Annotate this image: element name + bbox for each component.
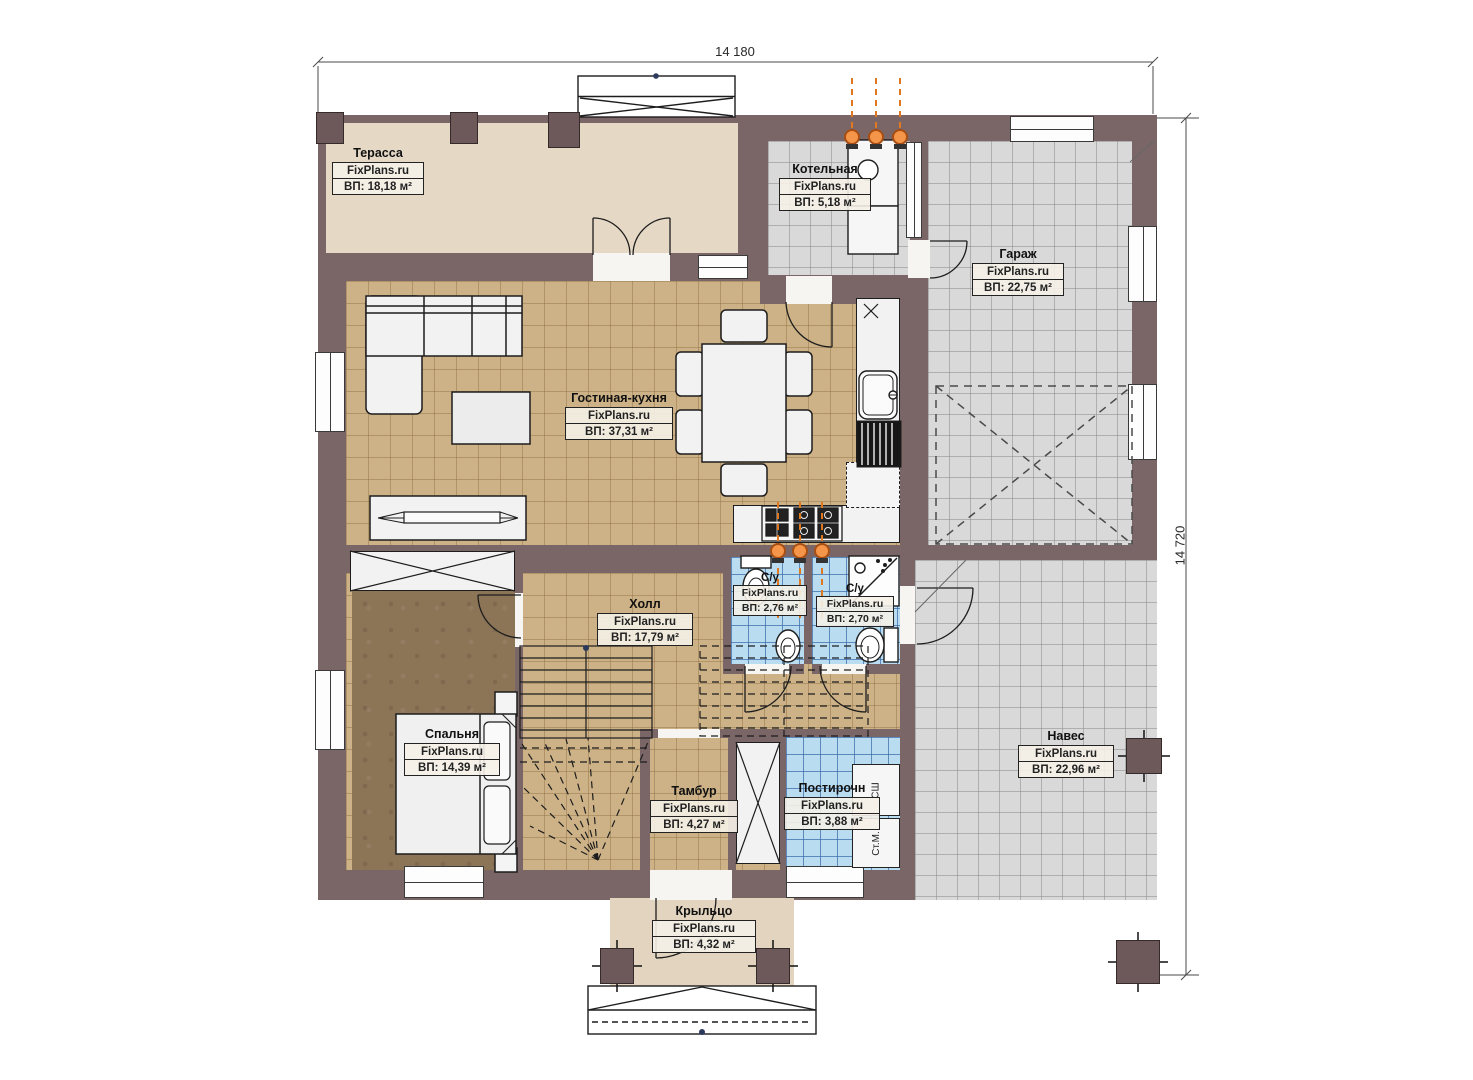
room-area: ВП: 2,70 м² — [817, 612, 893, 626]
brand-link[interactable]: FixPlans.ru — [598, 614, 692, 630]
room-name: С/у — [761, 572, 779, 584]
washing-machine-label: Ст.М. — [871, 831, 882, 856]
kitchen-corner-cabinet — [846, 462, 900, 508]
garage-window-right-2 — [1128, 384, 1157, 460]
terrace-pillar-1 — [316, 112, 344, 144]
porch-pillar-left — [600, 948, 634, 984]
room-area: ВП: 14,39 м² — [405, 760, 499, 775]
brand-link[interactable]: FixPlans.ru — [1019, 746, 1113, 762]
room-area: ВП: 22,96 м² — [1019, 762, 1113, 777]
laundry-top-wall — [786, 729, 900, 737]
room-name: С/у — [846, 583, 864, 595]
boiler-flue-duct — [906, 142, 922, 238]
living-window-left — [315, 352, 345, 432]
room-area: ВП: 18,18 м² — [333, 179, 423, 194]
laundry-window-bottom — [786, 866, 864, 898]
bathroom-2-door-opening — [822, 664, 866, 674]
brand-link[interactable]: FixPlans.ru — [780, 179, 870, 195]
wardrobe-side-wall — [515, 549, 523, 591]
kitchen-boiler-door-opening — [786, 276, 832, 304]
porch-pillar-right — [756, 948, 790, 984]
garage-gate-opening — [1010, 116, 1094, 142]
room-name: Постирочн — [799, 781, 866, 795]
closet-top-wall — [736, 729, 780, 742]
terrace-pillar-2 — [450, 112, 478, 144]
brand-link[interactable]: FixPlans.ru — [405, 744, 499, 760]
room-name: Навес — [1047, 729, 1084, 743]
room-label-laundry: Постирочн FixPlans.ruВП: 3,88 м² — [784, 781, 880, 830]
room-label-bathroom-1: С/у FixPlans.ruВП: 2,76 м² — [733, 572, 807, 616]
room-name: Тамбур — [671, 784, 716, 798]
garage-window-right-1 — [1128, 226, 1157, 302]
bedroom-door-opening — [515, 593, 523, 647]
brand-link[interactable]: FixPlans.ru — [653, 921, 755, 937]
room-name: Гостиная-кухня — [571, 391, 667, 405]
room-label-garage: Гараж FixPlans.ruВП: 22,75 м² — [972, 247, 1064, 296]
brand-link[interactable]: FixPlans.ru — [333, 163, 423, 179]
room-area: ВП: 4,32 м² — [653, 937, 755, 952]
terrace-pillar-3 — [548, 112, 580, 148]
dimension-top-label: 14 180 — [695, 44, 775, 59]
room-name: Гараж — [999, 247, 1036, 261]
kitchen-counter-bottom — [733, 505, 900, 543]
room-label-canopy: Навес FixPlans.ruВП: 22,96 м² — [1018, 729, 1114, 778]
brand-link[interactable]: FixPlans.ru — [651, 801, 737, 817]
room-label-terrace: Терасса FixPlans.ruВП: 18,18 м² — [332, 146, 424, 195]
vestibule-left-wall — [640, 729, 650, 870]
room-label-porch: Крыльцо FixPlans.ruВП: 4,32 м² — [652, 904, 756, 953]
bathroom-1-left-wall — [723, 557, 731, 664]
room-area: ВП: 4,27 м² — [651, 817, 737, 832]
room-name: Терасса — [353, 146, 403, 160]
terrace-door-opening — [593, 253, 670, 281]
room-name: Крыльцо — [676, 904, 733, 918]
room-name: Котельная — [792, 162, 857, 176]
bathroom-1-door-opening — [745, 664, 789, 674]
room-area: ВП: 5,18 м² — [780, 195, 870, 210]
room-area: ВП: 22,75 м² — [973, 280, 1063, 295]
terrace-window — [698, 255, 748, 279]
room-name: Спальня — [425, 727, 479, 741]
room-label-bathroom-2: С/у FixPlans.ruВП: 2,70 м² — [816, 583, 894, 627]
room-area: ВП: 17,79 м² — [598, 630, 692, 645]
vestibule-door-opening — [658, 729, 720, 738]
room-label-boiler-room: Котельная FixPlans.ruВП: 5,18 м² — [779, 162, 871, 211]
room-label-vestibule: Тамбур FixPlans.ruВП: 4,27 м² — [650, 784, 738, 833]
entry-door-opening — [650, 870, 732, 900]
brand-link[interactable]: FixPlans.ru — [973, 264, 1063, 280]
boiler-garage-door-opening — [908, 240, 930, 278]
room-label-living-kitchen: Гостиная-кухня FixPlans.ruВП: 37,31 м² — [565, 391, 673, 440]
canopy-pillar-1 — [1126, 738, 1162, 774]
hall-canopy-door-opening — [900, 586, 915, 644]
bedroom-window-left — [315, 670, 345, 750]
room-area: ВП: 2,76 м² — [734, 601, 806, 615]
wardrobe — [350, 551, 515, 591]
canopy-pillar-2 — [1116, 940, 1160, 984]
brand-link[interactable]: FixPlans.ru — [785, 798, 879, 814]
porch-steps — [588, 986, 816, 1035]
garage-floor — [928, 141, 1132, 545]
room-label-hall: Холл FixPlans.ruВП: 17,79 м² — [597, 597, 693, 646]
brand-link[interactable]: FixPlans.ru — [817, 597, 893, 612]
room-area: ВП: 3,88 м² — [785, 814, 879, 829]
room-area: ВП: 37,31 м² — [566, 424, 672, 439]
brand-link[interactable]: FixPlans.ru — [566, 408, 672, 424]
room-label-bedroom: Спальня FixPlans.ruВП: 14,39 м² — [404, 727, 500, 776]
floor-plan: СШ Ст.М. — [0, 0, 1473, 1080]
roof-truss — [578, 73, 735, 117]
hall-closet — [736, 742, 780, 864]
room-name: Холл — [629, 597, 660, 611]
bedroom-window-bottom — [404, 866, 484, 898]
brand-link[interactable]: FixPlans.ru — [734, 586, 806, 601]
dimension-right-label: 14 720 — [1173, 516, 1188, 576]
